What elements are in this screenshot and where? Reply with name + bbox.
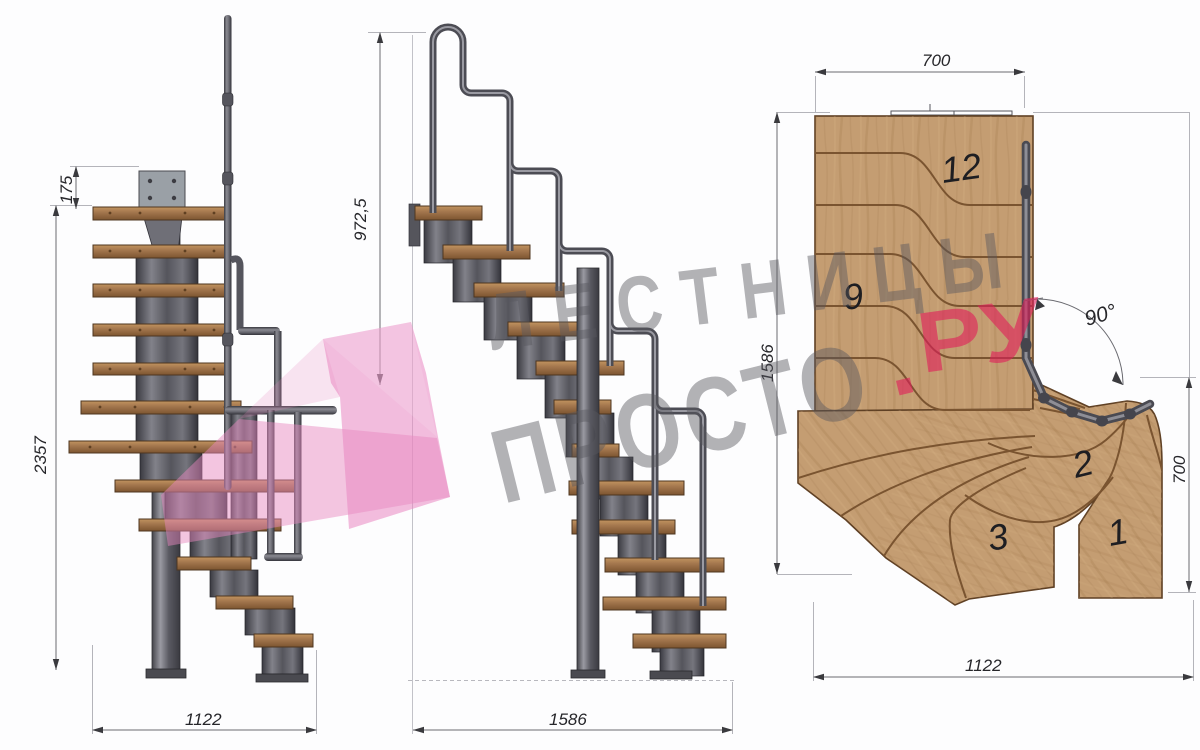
svg-text:972,5: 972,5 [351, 198, 370, 241]
svg-text:175: 175 [57, 175, 76, 204]
svg-text:2357: 2357 [31, 436, 50, 475]
svg-text:700: 700 [1170, 455, 1189, 484]
svg-text:1586: 1586 [549, 710, 587, 729]
svg-text:РУ: РУ [911, 279, 1050, 392]
svg-text:12: 12 [938, 145, 983, 191]
svg-text:1122: 1122 [185, 710, 222, 729]
svg-text:1122: 1122 [965, 656, 1002, 675]
svg-text:700: 700 [922, 51, 951, 70]
